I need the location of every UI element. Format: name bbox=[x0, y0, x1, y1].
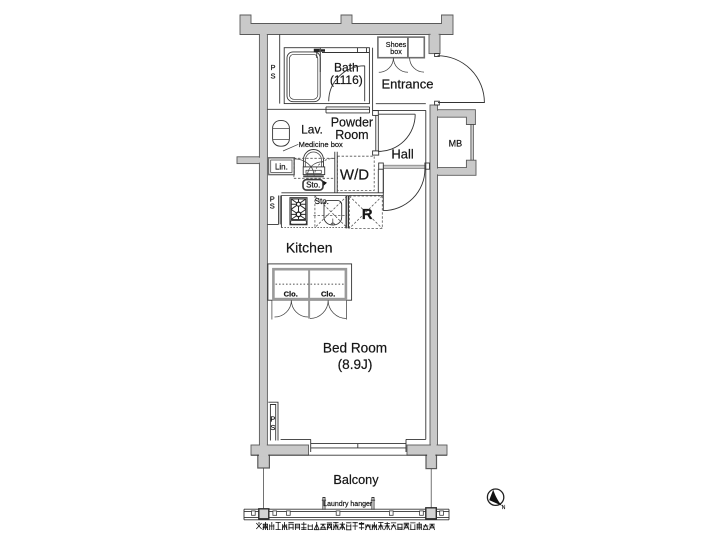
svg-text:S: S bbox=[270, 423, 275, 432]
svg-text:Hall: Hall bbox=[391, 147, 414, 162]
svg-text:Sto.: Sto. bbox=[306, 181, 320, 190]
svg-text:N: N bbox=[502, 505, 506, 511]
svg-text:Lin.: Lin. bbox=[275, 162, 288, 171]
svg-text:R: R bbox=[362, 206, 373, 223]
svg-text:W/D: W/D bbox=[340, 167, 369, 184]
svg-text:Kitchen: Kitchen bbox=[286, 239, 333, 255]
svg-text:S: S bbox=[270, 202, 275, 211]
svg-text:(8.9J): (8.9J) bbox=[338, 357, 373, 372]
svg-text:MB: MB bbox=[449, 138, 463, 148]
svg-text:Lav.: Lav. bbox=[301, 123, 323, 137]
svg-text:S: S bbox=[270, 72, 275, 81]
svg-text:Balcony: Balcony bbox=[333, 473, 379, 487]
svg-text:Clo.: Clo. bbox=[321, 289, 335, 298]
svg-text:Laundry hanger: Laundry hanger bbox=[323, 501, 373, 508]
svg-text:Entrance: Entrance bbox=[381, 77, 433, 92]
svg-text:Sto.: Sto. bbox=[315, 197, 329, 206]
svg-text:Bed Room: Bed Room bbox=[323, 340, 387, 355]
svg-text:(1116): (1116) bbox=[330, 73, 363, 87]
svg-text:box: box bbox=[390, 47, 402, 56]
svg-text:Medicine box: Medicine box bbox=[299, 140, 343, 149]
svg-text:Clo.: Clo. bbox=[284, 289, 298, 298]
